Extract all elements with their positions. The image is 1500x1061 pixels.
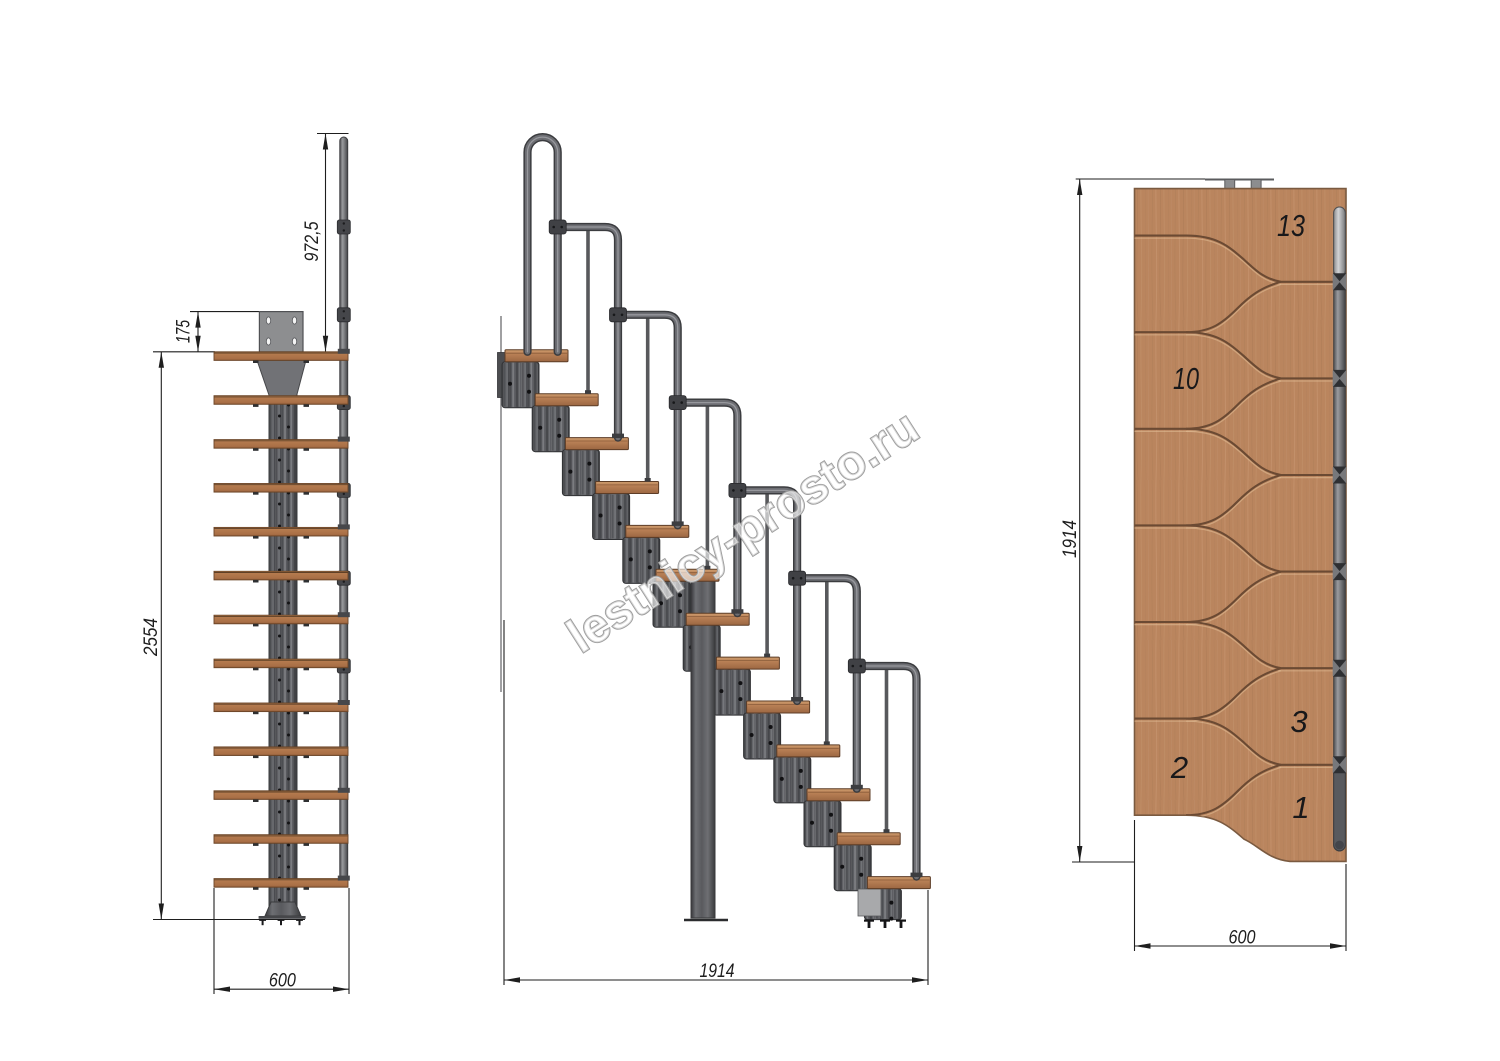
svg-text:1914: 1914 <box>700 960 735 982</box>
svg-text:1914: 1914 <box>1059 520 1081 558</box>
svg-text:972,5: 972,5 <box>301 221 323 261</box>
svg-text:2554: 2554 <box>140 618 162 657</box>
svg-text:3: 3 <box>1290 704 1307 739</box>
svg-text:600: 600 <box>1229 927 1256 949</box>
svg-text:1: 1 <box>1292 790 1309 825</box>
svg-text:600: 600 <box>269 970 296 992</box>
svg-text:2: 2 <box>1170 750 1188 785</box>
svg-text:175: 175 <box>173 320 195 343</box>
svg-text:10: 10 <box>1173 361 1199 396</box>
svg-text:13: 13 <box>1277 208 1305 243</box>
